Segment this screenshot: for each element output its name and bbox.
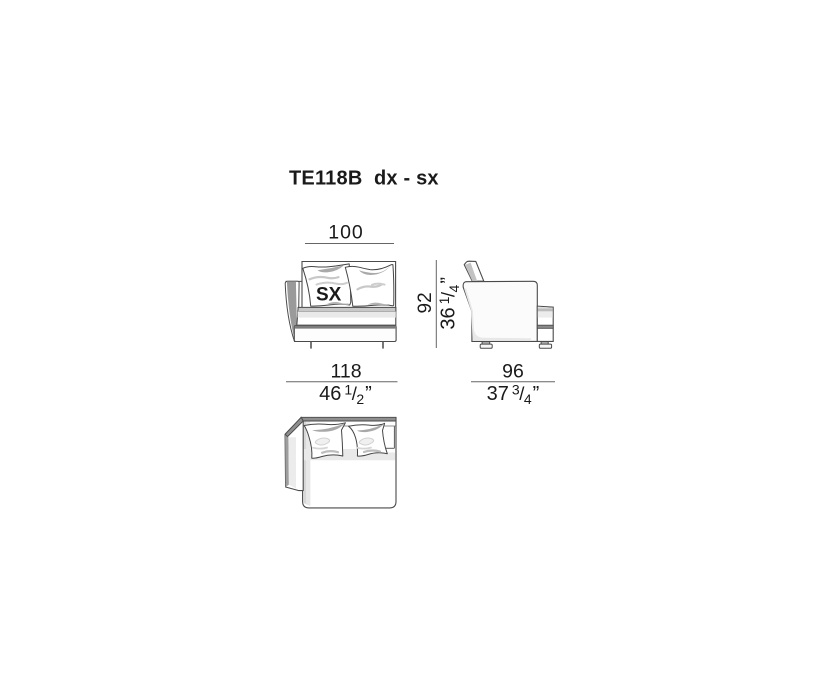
svg-text:92: 92 — [415, 292, 436, 313]
svg-text:96: 96 — [502, 361, 524, 383]
svg-text:SX: SX — [316, 285, 342, 306]
svg-text:TE118B dx - sx: TE118B dx - sx — [289, 168, 439, 190]
svg-text:118: 118 — [330, 361, 361, 383]
svg-text:100: 100 — [328, 222, 364, 244]
